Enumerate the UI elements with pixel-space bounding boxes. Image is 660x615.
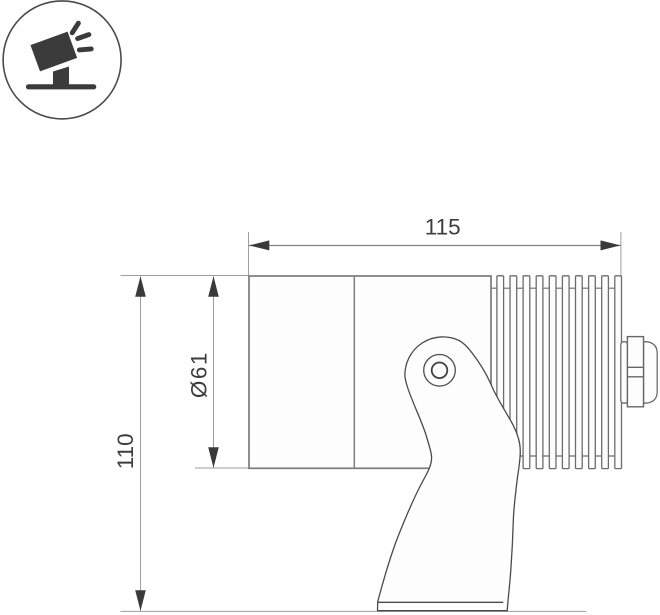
svg-text:115: 115 (425, 215, 461, 240)
svg-text:Ø61: Ø61 (186, 351, 211, 398)
svg-text:110: 110 (113, 433, 138, 469)
